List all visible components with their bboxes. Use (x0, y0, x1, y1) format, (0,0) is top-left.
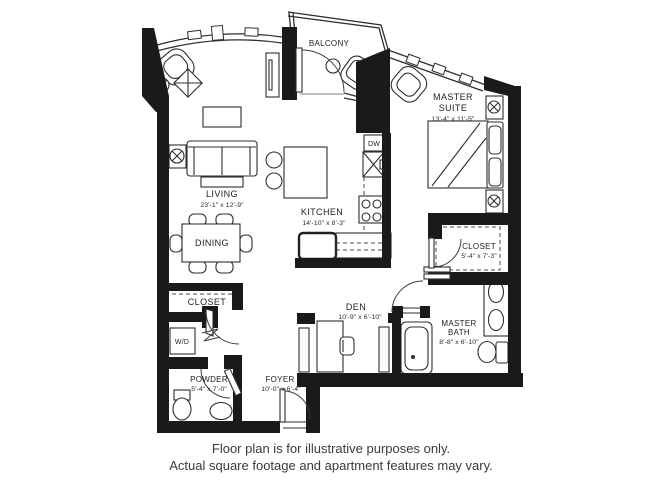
living-window-curved (157, 26, 282, 51)
washer-dryer-label: W/D (175, 339, 189, 346)
powder-dims: 5'-4" x 7'-0" (191, 386, 227, 393)
side-table-lamp (169, 145, 186, 168)
bed (428, 121, 503, 188)
dishwasher-label: DW (368, 141, 380, 148)
master-suite-label-2: SUITE (439, 103, 468, 113)
foyer-label: FOYER (265, 375, 294, 384)
master-suite-label-1: MASTER (433, 92, 473, 102)
master-closet-dims: 5'-4" x 7'-3" (461, 253, 497, 260)
master-bath-dims: 8'-8" x 6'-10" (439, 339, 479, 346)
footer-disclaimer-line1: Floor plan is for illustrative purposes … (212, 441, 450, 456)
footer-disclaimer-line2: Actual square footage and apartment feat… (169, 458, 493, 473)
dining-label: DINING (195, 238, 229, 248)
bedroom-chair (387, 62, 431, 106)
powder-label: POWDER (190, 375, 228, 384)
balcony-label: BALCONY (309, 39, 350, 48)
tv-console (266, 53, 279, 97)
sofa (187, 141, 257, 187)
kitchen-sink (363, 152, 385, 177)
kitchen-island (266, 147, 327, 198)
master-closet-label: CLOSET (462, 242, 496, 251)
nightstand-lamp-bottom (486, 190, 503, 213)
master-suite-dims: 13'-4" x 11'-5" (432, 116, 475, 123)
den-desk (317, 321, 354, 372)
bathtub (401, 322, 432, 374)
master-bath-label-2: BATH (448, 328, 470, 337)
media-table (203, 107, 241, 127)
toilet-powder (173, 390, 191, 420)
living-dims: 23'-1" x 12'-9" (200, 202, 244, 209)
den-dims: 10'-9" x 6'-10" (338, 314, 382, 321)
hall-closet-label: CLOSET (188, 297, 227, 307)
kitchen-dims: 14'-10" x 8'-3" (302, 220, 346, 227)
master-bath-label-1: MASTER (441, 319, 476, 328)
living-label: LIVING (206, 189, 238, 199)
den-label: DEN (346, 302, 366, 312)
hall-closet-door (202, 309, 239, 344)
master-closet-door (429, 238, 461, 268)
den-shelf-right (379, 327, 389, 372)
entry-door (280, 389, 310, 428)
refrigerator (299, 233, 336, 259)
nightstand-lamp-top (486, 96, 503, 119)
foyer-dims: 10'-0" x 6'-4" (261, 386, 301, 393)
floor-plan-drawing: BALCONY MASTER SUITE 13'-4" x 11'-5" LIV… (0, 0, 670, 480)
stove (359, 196, 383, 223)
powder-sink (210, 403, 232, 420)
floor-plan-page: BALCONY MASTER SUITE 13'-4" x 11'-5" LIV… (0, 0, 670, 480)
kitchen-label: KITCHEN (301, 207, 343, 217)
den-shelf-left (299, 328, 309, 372)
toilet-master (478, 342, 508, 364)
